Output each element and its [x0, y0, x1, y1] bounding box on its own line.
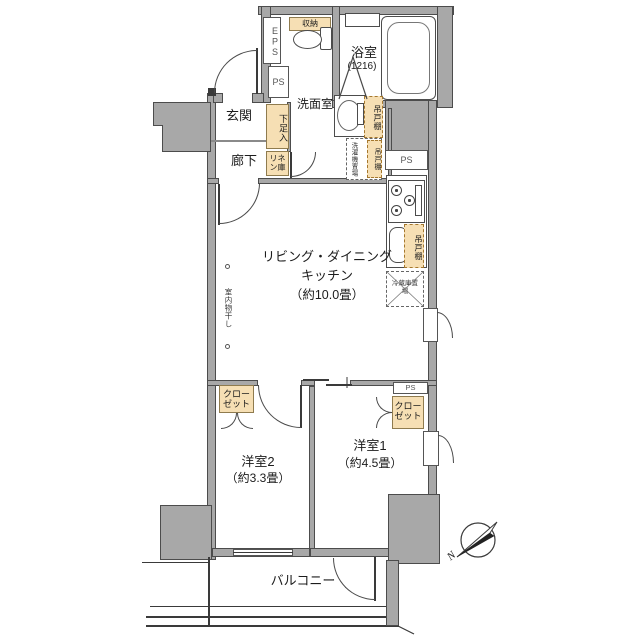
washer-space-label: 洗濯機置場	[348, 141, 357, 178]
room-label-entrance: 玄関	[213, 107, 265, 126]
compass-icon	[444, 506, 516, 572]
linen-closet: リネン庫	[266, 151, 289, 176]
washroom-door-arc	[291, 152, 316, 177]
hall-ldk-door-arc	[219, 183, 260, 224]
closet-bedroom1: クローゼット	[392, 396, 424, 429]
toilet-bowl	[293, 30, 322, 49]
window-right-lower-arc	[438, 435, 454, 463]
wall-bottom-bedroom1	[310, 548, 390, 557]
bedroom2-door-arc	[258, 385, 301, 428]
ps-shaft-bedroom1: PS	[393, 382, 428, 394]
bathtub-inner	[387, 22, 430, 94]
wall-bath-right	[437, 6, 453, 108]
window-right-lower	[423, 431, 439, 466]
drying-hook-top	[225, 264, 230, 269]
washbasin-faucet	[357, 103, 364, 125]
window-right-upper	[423, 308, 438, 342]
hanging-cupboard-kitchen: 吊戸棚	[404, 224, 424, 268]
closet-bedroom1-door-bottom	[376, 412, 392, 428]
window-bedroom2-rail	[233, 552, 293, 553]
wall-left	[207, 93, 216, 560]
balcony-rail-band-top	[146, 616, 399, 618]
entrance-step-line	[211, 140, 267, 142]
bedroom1-sliding-door-a	[303, 379, 329, 381]
bedroom1-sliding-door-b	[326, 384, 352, 386]
closet-bedroom2: クローゼット	[219, 385, 254, 413]
wall-bathroom-left	[332, 6, 340, 108]
room-label-bedroom1: 洋室1	[340, 437, 400, 456]
floorplan-canvas: EPS PS PS PS 玄関 廊下 下足入 リネン庫 浴室 (1216) 収納…	[0, 0, 640, 640]
ps-shaft-kitchen: PS	[385, 150, 428, 170]
wall-between-bedrooms	[309, 386, 315, 556]
entrance-door-arc	[214, 50, 257, 93]
room-label-ldk-size: （約10.0畳）	[247, 287, 407, 305]
drying-hook-bottom	[225, 344, 230, 349]
bathroom-size: (1216)	[338, 60, 386, 74]
room-label-hallway: 廊下	[222, 152, 266, 171]
bedroom1-size: （約4.5畳）	[330, 455, 410, 472]
bathroom-counter	[345, 13, 380, 27]
ps-shaft-top: PS	[268, 66, 289, 98]
window-right-upper-arc	[437, 312, 453, 338]
balcony-corner-diagonal	[398, 626, 414, 634]
stove-burner-2	[391, 205, 402, 216]
balcony-rail-line1	[150, 606, 398, 607]
room-label-washroom: 洗面室	[290, 96, 340, 113]
wall-block-bottom-right	[388, 494, 440, 564]
hanging-cupboard-washroom-2: 吊戸棚	[367, 140, 382, 178]
closet-bedroom2-door-right	[237, 413, 253, 429]
shoe-cabinet: 下足入	[266, 104, 289, 149]
balcony-rail-band-bottom	[146, 625, 399, 627]
indoor-drying-label: 室内物干し	[222, 287, 233, 329]
bedroom2-size: （約3.3畳）	[218, 470, 298, 487]
room-label-ldk-line2: キッチン	[247, 267, 407, 286]
balcony-divider	[386, 560, 399, 626]
wall-entrance-stub-right	[252, 93, 264, 103]
closet-bedroom1-door-top	[376, 397, 392, 413]
exterior-edge-left	[142, 562, 208, 563]
stove-grill	[415, 185, 422, 216]
room-label-ldk-line1: リビング・ダイニング	[247, 248, 407, 267]
closet-bedroom2-door-left	[221, 413, 237, 429]
neighbor-block-notch	[153, 125, 163, 152]
stove-burner-1	[391, 185, 402, 196]
wall-block-bottom-left	[160, 505, 212, 560]
stove-burner-3	[404, 195, 415, 206]
room-label-balcony: バルコニー	[258, 572, 348, 591]
eps-shaft: EPS	[263, 17, 281, 64]
hanging-cupboard-washroom-1: 吊戸棚	[364, 96, 383, 138]
